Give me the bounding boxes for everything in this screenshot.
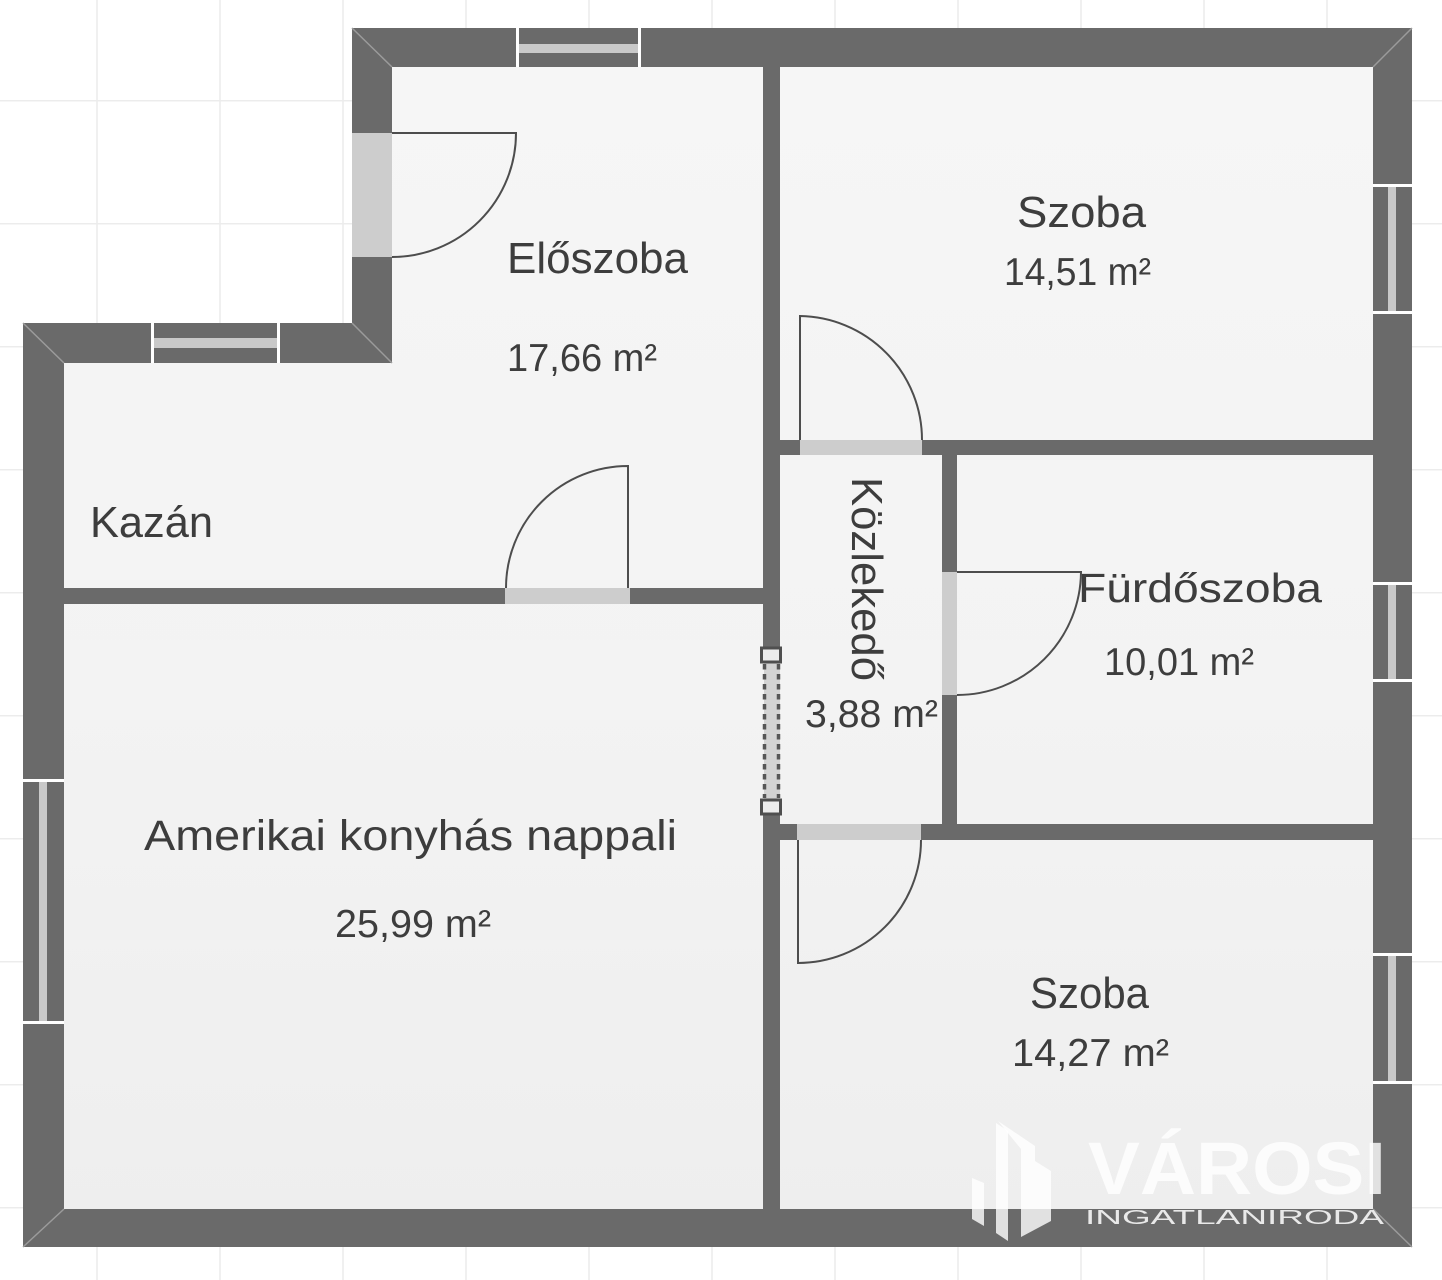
svg-text:INGATLANIRODA: INGATLANIRODA: [1085, 1207, 1385, 1229]
svg-text:Amerikai konyhás nappali: Amerikai konyhás nappali: [144, 812, 677, 860]
svg-text:3,88 m²: 3,88 m²: [805, 693, 938, 736]
svg-text:25,99 m²: 25,99 m²: [335, 903, 491, 946]
svg-text:Szoba: Szoba: [1017, 188, 1147, 237]
svg-text:10,01 m²: 10,01 m²: [1104, 641, 1254, 684]
svg-text:VÁROSI: VÁROSI: [1088, 1127, 1386, 1210]
svg-text:Szoba: Szoba: [1030, 969, 1149, 1018]
svg-text:Előszoba: Előszoba: [507, 234, 689, 283]
svg-text:Közlekedő: Közlekedő: [842, 477, 891, 681]
svg-text:Kazán: Kazán: [90, 498, 213, 547]
svg-text:14,27 m²: 14,27 m²: [1012, 1032, 1169, 1075]
svg-text:Fürdőszoba: Fürdőszoba: [1078, 565, 1322, 611]
svg-text:14,51 m²: 14,51 m²: [1004, 251, 1151, 294]
svg-text:17,66 m²: 17,66 m²: [507, 337, 657, 380]
